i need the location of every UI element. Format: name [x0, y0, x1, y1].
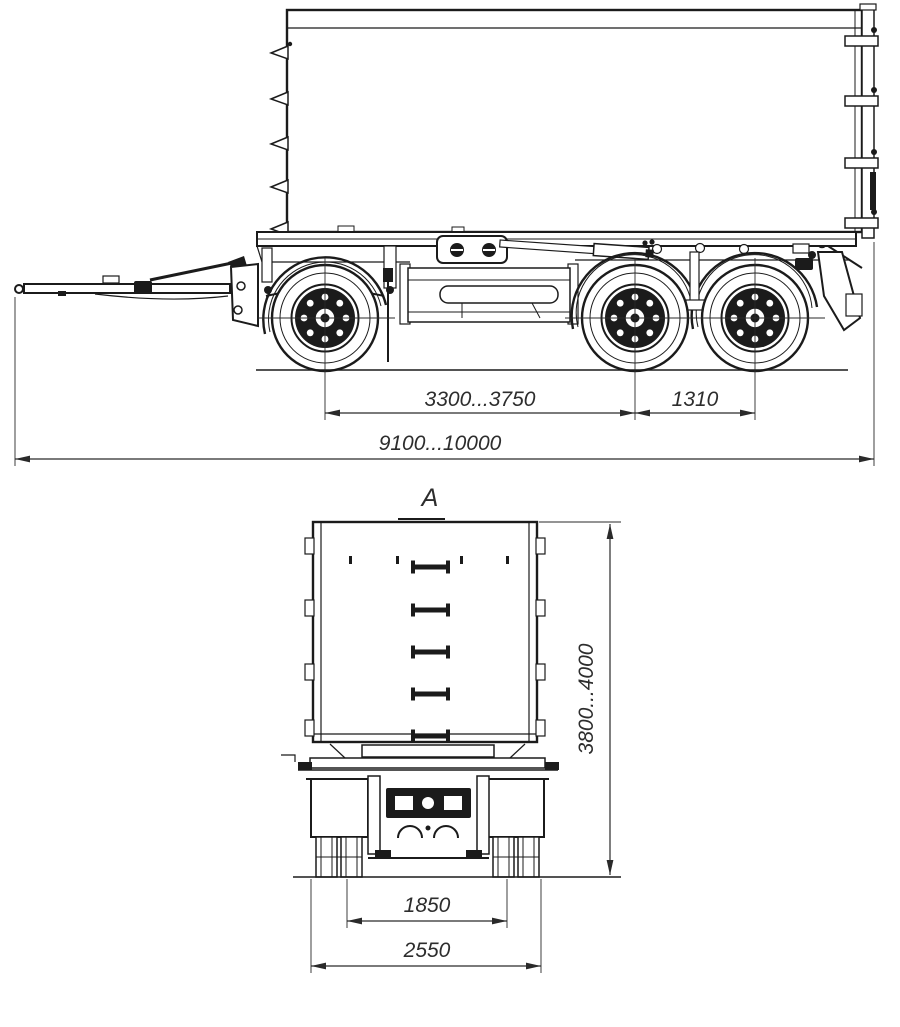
tow-eye	[15, 285, 23, 293]
rear-mudguard-left	[311, 779, 368, 837]
dim-overall-width: 2550	[403, 939, 451, 962]
dim-overall-height: 3800...4000	[575, 643, 598, 754]
hitch-plate	[231, 264, 258, 326]
equipment-box	[400, 264, 578, 324]
side-view: 3300...3750 1310 9100...10000	[15, 4, 878, 466]
dim-rear-axle-spacing: 1310	[672, 388, 719, 411]
cargo-box-side	[271, 4, 878, 268]
rear-wheels-right	[493, 837, 539, 877]
drawbar	[15, 256, 258, 326]
dim-track-width: 1850	[404, 894, 451, 917]
dim-overall-length: 9100...10000	[379, 432, 502, 455]
axle-suspension	[368, 776, 489, 858]
chassis-rear	[281, 744, 559, 877]
cylinder-mount-plate	[437, 236, 507, 263]
dim-axle-spacing: 3300...3750	[425, 388, 536, 411]
cargo-box-rear	[305, 519, 545, 743]
rear-wheels-left	[316, 837, 362, 877]
rear-mudguard-right	[487, 779, 544, 837]
technical-drawing: 3300...3750 1310 9100...10000 A	[0, 0, 900, 1027]
rear-view: A	[281, 484, 621, 973]
view-label-a: A	[420, 484, 439, 512]
